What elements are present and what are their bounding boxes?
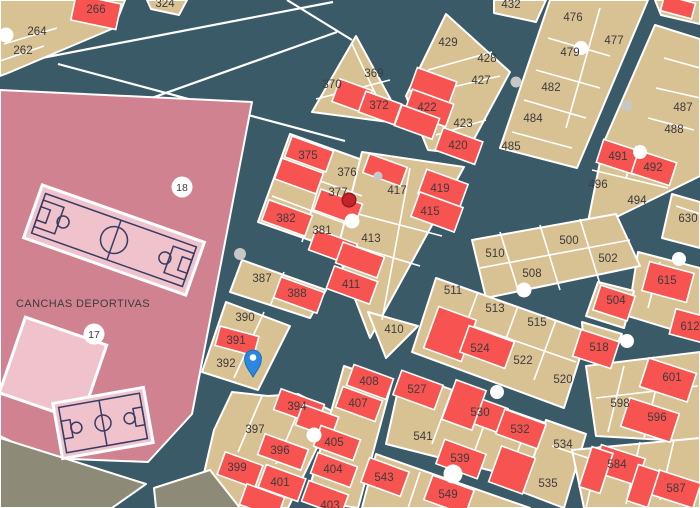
- parcel-label: 491: [608, 151, 627, 163]
- intersection-dot: [511, 77, 522, 88]
- parcel-label: 532: [510, 424, 529, 436]
- intersection-dot: [633, 145, 647, 159]
- parcel-label: 524: [470, 343, 490, 355]
- parcel-label: 494: [627, 195, 647, 207]
- parcel-label: 596: [647, 412, 666, 424]
- intersection-dot: [234, 248, 246, 260]
- parcel-label: 417: [387, 185, 406, 197]
- map-viewport[interactable]: 2663242642623703693724294284274224234204…: [0, 0, 700, 508]
- parcel-label: 423: [453, 118, 472, 130]
- area-badge-label: 17: [88, 329, 100, 341]
- parcel-label: 598: [610, 398, 629, 410]
- intersection-dot: [517, 283, 532, 298]
- parcel-label: 530: [470, 407, 489, 419]
- parcel-label: 522: [513, 355, 532, 367]
- parcel-label: 496: [588, 179, 607, 191]
- parcel-label: 369: [364, 68, 383, 80]
- parcel-label: 484: [523, 113, 543, 125]
- parcel-label: 403: [320, 500, 339, 508]
- parcel-label: 510: [485, 248, 504, 260]
- parcel-label: 541: [413, 431, 432, 443]
- parcel-label: 387: [252, 273, 271, 285]
- intersection-dot: [490, 385, 504, 399]
- parcel-label: 390: [235, 312, 254, 324]
- parcel-label: 527: [407, 384, 426, 396]
- parcel-label: 476: [563, 12, 582, 24]
- parcel-label: 372: [369, 100, 388, 112]
- parcel-label: 401: [270, 477, 289, 489]
- parcel-label: 413: [361, 233, 380, 245]
- area-label: CANCHAS DEPORTIVAS: [16, 298, 150, 310]
- parcel-label: 391: [226, 335, 245, 347]
- parcel-label: 587: [666, 483, 685, 495]
- parcel-label: 500: [559, 235, 578, 247]
- parcel-label: 487: [673, 102, 692, 114]
- parcel-label: 420: [448, 140, 467, 152]
- parcel-label: 324: [155, 0, 175, 10]
- parcel-label: 396: [270, 445, 289, 457]
- parcel-label: 370: [322, 79, 341, 91]
- parcel-label: 376: [337, 167, 356, 179]
- parcel-label: 392: [216, 358, 235, 370]
- intersection-dot: [672, 252, 686, 266]
- intersection-dot: [307, 428, 322, 443]
- parcel-label: 482: [541, 82, 560, 94]
- intersection-dot: [374, 172, 383, 181]
- parcel-label: 428: [477, 53, 496, 65]
- parcel-label: 427: [471, 75, 490, 87]
- parcel-label: 488: [664, 124, 683, 136]
- parcel-label: 535: [538, 478, 557, 490]
- parcel-label: 502: [598, 253, 617, 265]
- area-badge-label: 18: [176, 182, 188, 194]
- parcel-label: 513: [485, 303, 504, 315]
- parcel-label: 410: [384, 324, 403, 336]
- parcel-label: 485: [501, 141, 520, 153]
- spot-marker[interactable]: [342, 193, 356, 207]
- parcel-label: 511: [444, 285, 462, 297]
- parcel-label: 408: [359, 376, 378, 388]
- parcel-label: 399: [227, 462, 246, 474]
- parcel-label: 405: [324, 437, 343, 449]
- parcel-label: 397: [245, 424, 264, 436]
- parcel-label: 615: [657, 275, 676, 287]
- parcel-label: 432: [501, 0, 520, 11]
- parcel-label: 534: [553, 439, 573, 451]
- parcel-label: 612: [680, 321, 699, 333]
- parcel-label: 419: [430, 183, 449, 195]
- parcel-label: 504: [606, 295, 626, 307]
- parcel-label: 388: [287, 288, 306, 300]
- parcel-label: 492: [643, 162, 662, 174]
- parcel-label: 518: [589, 342, 608, 354]
- parcel-label: 479: [560, 47, 579, 59]
- parcel-label: 382: [276, 213, 295, 225]
- parcel-label: 404: [323, 464, 343, 476]
- parcel-label: 407: [348, 398, 367, 410]
- parcel-label: 520: [553, 374, 572, 386]
- parcel-label: 601: [662, 372, 681, 384]
- parcel-label: 415: [420, 206, 439, 218]
- parcel-label: 262: [13, 45, 32, 57]
- parcel-label: 394: [287, 401, 307, 413]
- parcel-label: 429: [438, 37, 457, 49]
- parcel-label: 543: [374, 472, 393, 484]
- parcel-label: 477: [604, 35, 623, 47]
- parcel-label: 584: [607, 459, 627, 471]
- parcel-label: 515: [527, 317, 546, 329]
- parcel-label: 264: [27, 26, 47, 38]
- intersection-dot: [444, 465, 463, 484]
- parcel-label: 549: [438, 489, 457, 501]
- intersection-dot: [620, 334, 634, 348]
- parcel-label: 266: [86, 4, 105, 16]
- parcel-label: 539: [450, 453, 469, 465]
- parcel-label: 375: [298, 150, 317, 162]
- parcel-label: 381: [312, 225, 331, 237]
- map-svg[interactable]: 2663242642623703693724294284274224234204…: [0, 0, 700, 508]
- intersection-dot: [622, 101, 633, 112]
- intersection-dot: [345, 214, 360, 229]
- parcel-label: 630: [678, 213, 697, 225]
- parcel-label: 411: [342, 279, 360, 291]
- parcel-label: 508: [522, 268, 541, 280]
- parcel-label: 422: [417, 102, 436, 114]
